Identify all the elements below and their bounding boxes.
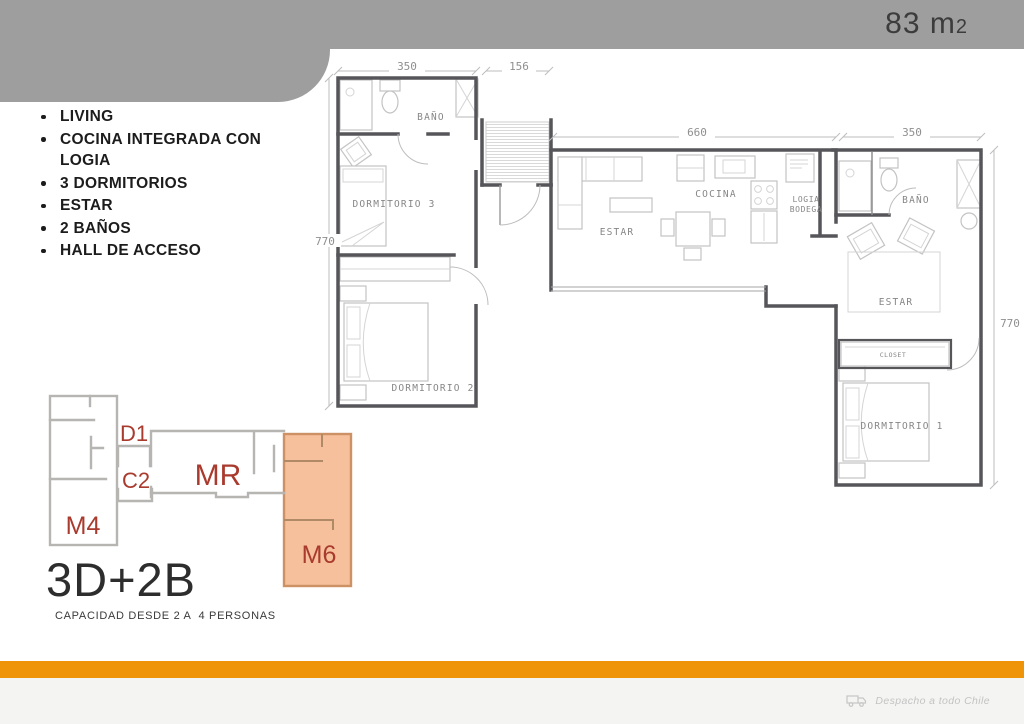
unit-label-m4: M4 (66, 512, 101, 540)
feature-item: LIVING (32, 106, 272, 128)
unit-label-mr: MR (195, 459, 242, 492)
dim-156: 156 (509, 60, 529, 73)
summary-block: 3D+2B CAPACIDAD DESDE 2 A 4 PERSONAS (46, 556, 276, 622)
room-label-living: ESTAR (600, 227, 635, 238)
area-value: 83 m (885, 7, 956, 40)
unit-label-c2: C2 (122, 468, 150, 493)
room-label-bath-left: BAÑO (417, 112, 445, 123)
feature-list: LIVING COCINA INTEGRADA CON LOGIA 3 DORM… (32, 106, 272, 263)
entry-hall-hatch (486, 122, 549, 182)
dim-350-right: 350 (902, 126, 922, 139)
feature-item: 2 BAÑOS (32, 218, 272, 240)
room-label-logia-2: BODEGA (790, 205, 823, 214)
accent-bar (0, 661, 1024, 678)
area-label: 83 m2 (885, 7, 968, 41)
unit-label-m6: M6 (302, 541, 337, 569)
dim-350-left: 350 (397, 60, 417, 73)
truck-icon (846, 694, 868, 708)
room-label-closet: CLOSET (880, 351, 906, 359)
capacity-note: CAPACIDAD DESDE 2 A 4 PERSONAS (55, 610, 276, 622)
feature-item: 3 DORMITORIOS (32, 173, 272, 195)
room-label-bedroom1: DORMITORIO 1 (860, 421, 943, 432)
room-label-sitting: ESTAR (879, 297, 914, 308)
room-label-kitchen: COCINA (695, 189, 737, 200)
dim-770-left: 770 (315, 235, 335, 248)
footer: Despacho a todo Chile (0, 678, 1024, 724)
area-exponent: 2 (956, 16, 968, 38)
header-band-left (0, 0, 330, 102)
dim-770-right: 770 (1000, 317, 1020, 330)
feature-item: ESTAR (32, 195, 272, 217)
room-label-bath-right: BAÑO (902, 195, 930, 206)
page: 83 m2 LIVING COCINA INTEGRADA CON LOGIA … (0, 0, 1024, 724)
room-label-logia-1: LOGIA (792, 195, 819, 204)
feature-item: HALL DE ACCESO (32, 240, 272, 262)
furniture (340, 79, 981, 478)
shipping-note: Despacho a todo Chile (846, 694, 990, 708)
room-label-bedroom2: DORMITORIO 2 (391, 383, 474, 394)
dim-660: 660 (687, 126, 707, 139)
shipping-text: Despacho a todo Chile (875, 695, 990, 707)
unit-label-d1: D1 (120, 421, 148, 446)
feature-item: COCINA INTEGRADA CON LOGIA (32, 129, 272, 172)
room-label-bedroom3: DORMITORIO 3 (352, 199, 435, 210)
floor-plan: 350 156 770 660 350 770 BAÑO DORMITORIO … (300, 55, 1024, 505)
typology-title: 3D+2B (46, 556, 276, 603)
